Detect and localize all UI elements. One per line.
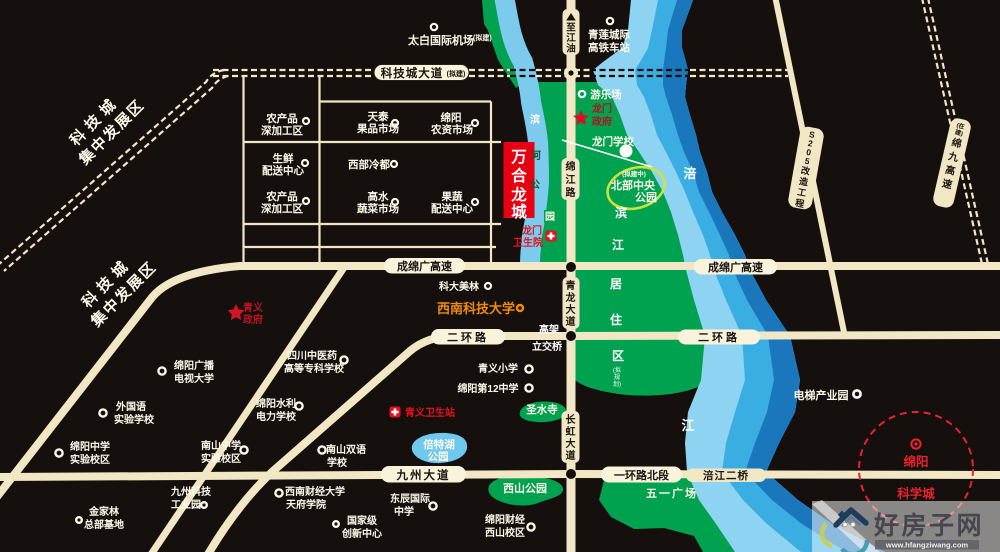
svg-text:虹: 虹 xyxy=(566,425,576,438)
svg-text:学校: 学校 xyxy=(327,456,348,469)
svg-text:万: 万 xyxy=(510,149,527,166)
svg-text:配送中心: 配送中心 xyxy=(431,202,473,215)
svg-text:创新中心: 创新中心 xyxy=(341,527,382,540)
svg-text:油: 油 xyxy=(566,43,576,55)
svg-text:西南科技大学: 西南科技大学 xyxy=(437,301,515,316)
svg-text:龙门: 龙门 xyxy=(591,102,612,115)
svg-text:科技城大道: 科技城大道 xyxy=(381,66,444,80)
svg-text:总部基地: 总部基地 xyxy=(84,518,124,531)
svg-text:西山校区: 西山校区 xyxy=(485,526,525,539)
svg-text:太白国际机场: 太白国际机场 xyxy=(407,33,474,47)
svg-text:西山公园: 西山公园 xyxy=(503,481,547,495)
svg-text:龙门学校: 龙门学校 xyxy=(591,135,634,148)
svg-text:绵阳财经: 绵阳财经 xyxy=(485,513,525,526)
svg-text:江: 江 xyxy=(566,173,576,186)
svg-text:大: 大 xyxy=(566,303,576,316)
svg-text:果蔬: 果蔬 xyxy=(441,190,463,203)
svg-text:绵阳中学: 绵阳中学 xyxy=(70,440,110,453)
svg-text:居: 居 xyxy=(610,277,622,291)
svg-text:中学: 中学 xyxy=(394,505,414,518)
svg-text:工: 工 xyxy=(796,187,807,198)
svg-text:至: 至 xyxy=(566,23,576,34)
svg-text:青莲城际: 青莲城际 xyxy=(588,28,630,41)
svg-text:道: 道 xyxy=(566,315,576,328)
svg-text:配送中心: 配送中心 xyxy=(262,164,304,177)
svg-text:绵阳水利: 绵阳水利 xyxy=(256,397,296,410)
svg-text:九州大道: 九州大道 xyxy=(396,468,451,482)
svg-text:城: 城 xyxy=(511,203,527,221)
svg-text:五一广场: 五一广场 xyxy=(646,486,698,500)
svg-text:实验学校: 实验学校 xyxy=(114,413,155,426)
svg-text:龙: 龙 xyxy=(565,291,576,304)
svg-text:电梯产业园: 电梯产业园 xyxy=(794,388,849,402)
svg-text:青义: 青义 xyxy=(243,301,264,314)
svg-text:农资市场: 农资市场 xyxy=(430,123,473,136)
svg-text:青义小学: 青义小学 xyxy=(478,362,518,375)
svg-text:划): 划) xyxy=(613,380,621,388)
svg-text:河: 河 xyxy=(531,150,541,162)
svg-text:滨: 滨 xyxy=(530,113,540,126)
svg-text:绵阳: 绵阳 xyxy=(441,111,462,124)
svg-text:九州科技: 九州科技 xyxy=(170,485,212,498)
svg-text:外国语: 外国语 xyxy=(115,400,146,413)
svg-text:龙门: 龙门 xyxy=(521,224,542,237)
svg-text:www.hfangziwang.com: www.hfangziwang.com xyxy=(885,541,969,550)
svg-text:立交桥: 立交桥 xyxy=(532,340,563,353)
svg-text:龙: 龙 xyxy=(510,185,527,204)
svg-text:青义卫生站: 青义卫生站 xyxy=(405,406,455,419)
svg-text:二环路: 二环路 xyxy=(447,330,489,344)
svg-text:程: 程 xyxy=(794,197,805,209)
svg-text:工业园: 工业园 xyxy=(171,498,201,511)
svg-text:(拟建中): (拟建中) xyxy=(622,169,646,178)
svg-text:政府: 政府 xyxy=(243,313,263,326)
svg-text:(拟: (拟 xyxy=(613,366,621,374)
svg-text:政府: 政府 xyxy=(592,115,612,128)
svg-text:绵阳第12中学: 绵阳第12中学 xyxy=(457,382,518,395)
svg-text:实验校区: 实验校区 xyxy=(201,452,241,465)
svg-text:深加工区: 深加工区 xyxy=(261,202,303,215)
svg-text:农产品: 农产品 xyxy=(265,112,298,125)
svg-text:高水: 高水 xyxy=(368,190,389,203)
svg-text:倍特湖: 倍特湖 xyxy=(423,438,455,451)
svg-text:科大美林: 科大美林 xyxy=(439,280,480,293)
svg-text:区: 区 xyxy=(612,349,624,363)
svg-text:绵阳广播: 绵阳广播 xyxy=(174,359,215,372)
svg-text:江: 江 xyxy=(566,32,576,44)
svg-text:电力学校: 电力学校 xyxy=(256,410,297,423)
svg-text:(拟建): (拟建) xyxy=(447,69,466,78)
svg-text:成绵广高速: 成绵广高速 xyxy=(397,259,452,273)
svg-text:成绵广高速: 成绵广高速 xyxy=(708,260,763,274)
svg-text:高铁车站: 高铁车站 xyxy=(588,41,630,54)
svg-text:绵: 绵 xyxy=(566,160,576,173)
svg-text:天泰: 天泰 xyxy=(368,110,389,123)
svg-text:金家林: 金家林 xyxy=(88,505,120,518)
svg-text:高架: 高架 xyxy=(539,323,559,336)
svg-text:滨: 滨 xyxy=(615,205,627,220)
svg-text:四川中医药: 四川中医药 xyxy=(287,349,337,362)
svg-text:南山双语: 南山双语 xyxy=(326,443,366,456)
svg-text:西部冷都: 西部冷都 xyxy=(348,158,390,171)
svg-text:绵阳: 绵阳 xyxy=(903,454,928,469)
svg-text:规: 规 xyxy=(614,373,620,381)
svg-text:好房子网: 好房子网 xyxy=(873,511,984,540)
svg-text:国家级: 国家级 xyxy=(347,514,378,527)
svg-text:涪: 涪 xyxy=(683,166,696,181)
svg-text:园: 园 xyxy=(545,211,555,223)
svg-text:大: 大 xyxy=(566,437,576,450)
svg-text:公园: 公园 xyxy=(428,451,449,463)
svg-text:路: 路 xyxy=(566,186,577,199)
svg-text:涪江二桥: 涪江二桥 xyxy=(703,469,749,482)
svg-text:公: 公 xyxy=(530,179,540,191)
svg-text:生鲜: 生鲜 xyxy=(273,152,294,165)
svg-text:游乐场: 游乐场 xyxy=(590,88,622,101)
svg-text:实验校区: 实验校区 xyxy=(70,453,110,466)
svg-text:公园: 公园 xyxy=(635,191,657,204)
svg-text:住: 住 xyxy=(610,312,622,327)
svg-text:深加工区: 深加工区 xyxy=(261,124,303,137)
svg-text:科学城: 科学城 xyxy=(897,486,935,501)
svg-text:青: 青 xyxy=(566,279,576,292)
svg-text:南山中学: 南山中学 xyxy=(201,439,241,452)
svg-text:二环路: 二环路 xyxy=(698,330,740,344)
svg-text:江: 江 xyxy=(681,418,694,433)
svg-text:电视大学: 电视大学 xyxy=(174,372,214,385)
svg-text:圣水寺: 圣水寺 xyxy=(525,403,558,416)
svg-text:西南财经大学: 西南财经大学 xyxy=(285,485,345,498)
svg-text:天府学院: 天府学院 xyxy=(286,498,326,511)
svg-text:北部中央: 北部中央 xyxy=(611,178,656,192)
svg-text:江: 江 xyxy=(612,237,624,252)
svg-text:东辰国际: 东辰国际 xyxy=(390,492,430,505)
svg-text:合: 合 xyxy=(511,166,527,185)
svg-text:长: 长 xyxy=(566,413,577,426)
svg-text:卫生院: 卫生院 xyxy=(513,236,543,249)
svg-text:道: 道 xyxy=(566,449,576,462)
svg-text:(拟建): (拟建) xyxy=(473,33,492,42)
svg-text:高等专科学校: 高等专科学校 xyxy=(284,362,345,375)
svg-text:一环路北段: 一环路北段 xyxy=(614,468,669,482)
svg-text:农产品: 农产品 xyxy=(265,190,298,203)
